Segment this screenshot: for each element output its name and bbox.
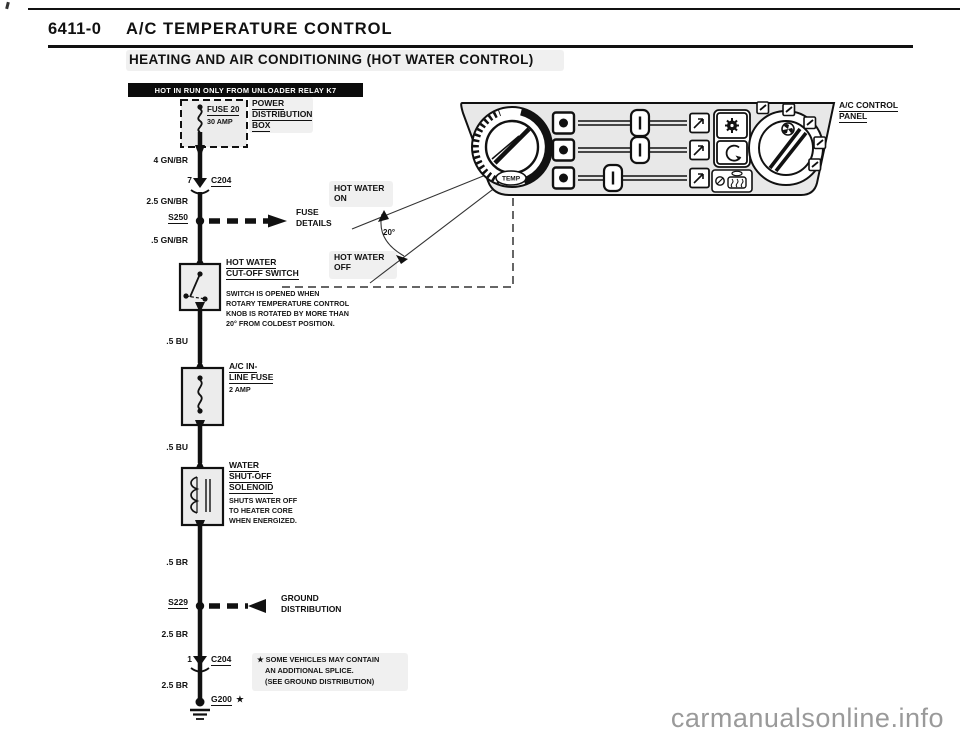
splice-s229-name: S229 xyxy=(168,597,188,609)
star-note-2: AN ADDITIONAL SPLICE. xyxy=(265,667,354,676)
splice-s229-label: S229 xyxy=(116,598,188,608)
wire-label-25br-2: 2.5 BR xyxy=(116,681,188,691)
wire-label-25br-1: 2.5 BR xyxy=(116,630,188,640)
cutoff-switch-note-3: KNOB IS ROTATED BY MORE THAN xyxy=(226,310,349,318)
star-note-3: (SEE GROUND DISTRIBUTION) xyxy=(265,678,374,687)
ground-distribution-arrow-icon xyxy=(248,599,266,613)
splice-s250-label: S250 xyxy=(116,213,188,223)
fuse20-label: FUSE 20 xyxy=(207,105,239,116)
inline-fuse-title-2: LINE FUSE xyxy=(229,373,273,384)
inline-fuse-symbol xyxy=(182,359,223,432)
fuse20-rating: 30 AMP xyxy=(207,118,233,126)
splice-s229-symbol xyxy=(196,599,266,613)
connector-c204-top-symbol xyxy=(191,178,209,194)
fuse-details-ref-1: FUSE xyxy=(296,208,319,218)
wire-label-5bu-1: .5 BU xyxy=(116,337,188,347)
connector-c204-top-pin: 7 xyxy=(172,176,192,186)
temp-knob: TEMP xyxy=(472,107,552,187)
hot-water-off-2: OFF xyxy=(334,263,351,273)
ground-distribution-ref-1: GROUND xyxy=(281,594,319,604)
cutoff-switch-note-2: ROTARY TEMPERATURE CONTROL xyxy=(226,300,349,308)
wire-label-5br: .5 BR xyxy=(116,558,188,568)
splice-s250-name: S250 xyxy=(168,212,188,224)
wire-label-5gnbr: .5 GN/BR xyxy=(116,236,188,246)
slider-button-dot xyxy=(559,174,568,183)
fuse-details-arrow-icon xyxy=(268,215,287,228)
fuse-details-ref-2: DETAILS xyxy=(296,219,332,229)
wire-label-25gnbr: 2.5 GN/BR xyxy=(116,197,188,207)
connector-c204-top-label: C204 xyxy=(211,176,231,187)
cutoff-switch-title-2: CUT-OFF SWITCH xyxy=(226,269,299,280)
wire-label-5bu-2: .5 BU xyxy=(116,443,188,453)
watermark: carmanualsonline.info xyxy=(671,703,944,734)
splice-s250-symbol xyxy=(196,215,287,228)
temp-knob-label: TEMP xyxy=(502,176,521,183)
panel-label-2: PANEL xyxy=(839,112,867,123)
fan-blade-icon xyxy=(782,123,794,135)
slider-button-dot xyxy=(559,146,568,155)
connector-c204-bottom-label: C204 xyxy=(211,655,231,666)
manual-page: 6411-0 A/C TEMPERATURE CONTROL HEATING A… xyxy=(0,0,960,746)
ground-g200-label: G200 ★ xyxy=(211,695,244,705)
panel-button-group xyxy=(712,110,752,192)
solenoid-title-3: SOLENOID xyxy=(229,483,273,494)
ac-control-panel-art: TEMP xyxy=(461,102,834,195)
arc-arrow-icon xyxy=(378,210,389,222)
solenoid-note-3: WHEN ENERGIZED. xyxy=(229,517,297,525)
ground-g200-symbol xyxy=(190,698,210,720)
arc-arrow-icon xyxy=(396,255,408,264)
fuse-terminal-dot xyxy=(197,104,202,109)
slider-button-dot xyxy=(559,119,568,128)
solenoid-note-1: SHUTS WATER OFF xyxy=(229,497,297,505)
star-note-1: ★ SOME VEHICLES MAY CONTAIN xyxy=(257,656,379,665)
power-box-label-3: BOX xyxy=(252,121,270,132)
wire-label-4gnbr: 4 GN/BR xyxy=(116,156,188,166)
solenoid-note-2: TO HEATER CORE xyxy=(229,507,293,515)
cutoff-switch-note-4: 20° FROM COLDEST POSITION. xyxy=(226,320,335,328)
cutoff-switch-symbol xyxy=(180,256,220,313)
ground-star: ★ xyxy=(236,694,244,704)
ground-g200-name: G200 xyxy=(211,694,232,706)
solenoid-symbol xyxy=(182,459,223,532)
angle-20-label: 20° xyxy=(383,228,395,237)
hot-water-on-2: ON xyxy=(334,194,347,204)
inline-fuse-rating: 2 AMP xyxy=(229,386,251,394)
ground-distribution-ref-2: DISTRIBUTION xyxy=(281,605,341,615)
connector-c204-bottom-pin: 1 xyxy=(172,655,192,665)
cutoff-switch-note-1: SWITCH IS OPENED WHEN xyxy=(226,290,319,298)
